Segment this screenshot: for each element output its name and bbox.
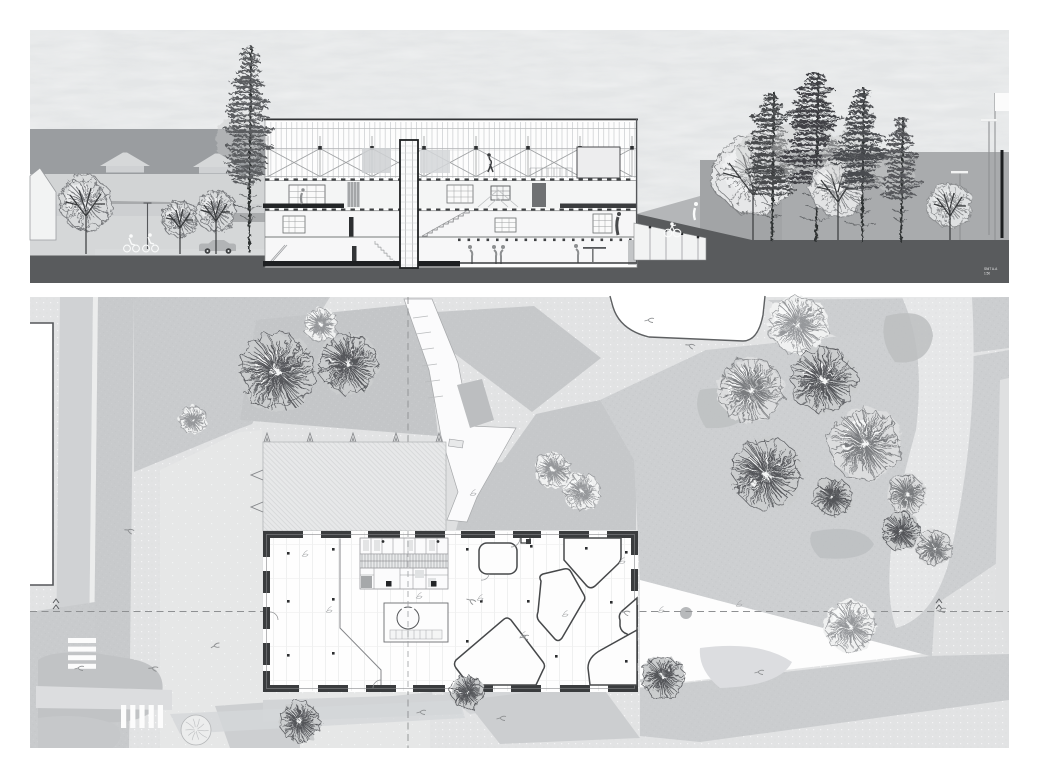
svg-text:SNIT A-A: SNIT A-A [984,267,998,271]
svg-text:1:50: 1:50 [984,272,990,276]
